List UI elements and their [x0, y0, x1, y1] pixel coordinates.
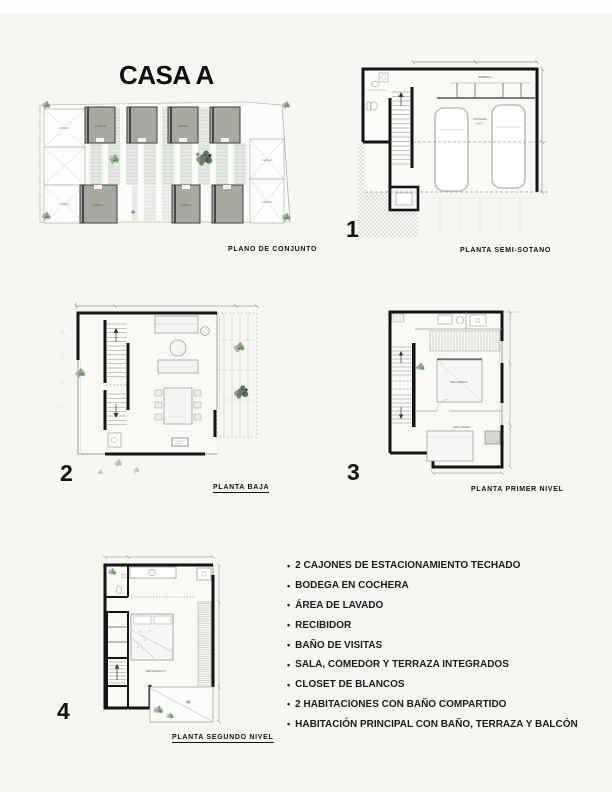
table-icon	[170, 340, 186, 356]
bullet-icon: •	[287, 561, 290, 571]
tree-icon	[234, 342, 245, 352]
site-unit-label: CASA A	[181, 203, 192, 207]
site-unit-label: CASA A	[262, 158, 273, 162]
toilet-icon	[116, 586, 121, 593]
feature-item: •CLOSET DE BLANCOS	[287, 675, 592, 695]
feature-text: 2 HABITACIONES CON BAÑO COMPARTIDO	[295, 699, 506, 710]
plan-4-caption: PLANTA SEGUNDO NIVEL	[172, 734, 274, 743]
bullet-icon: •	[287, 660, 290, 670]
site-unit-label: CASA A	[178, 124, 189, 128]
pillow-icon	[134, 616, 151, 624]
bullet-icon: •	[287, 581, 290, 591]
site-unit-label: CASA A	[95, 124, 106, 128]
car-icon	[435, 108, 468, 191]
plan-2-number: 2	[60, 460, 73, 487]
shrub-icon	[133, 467, 139, 473]
feature-text: BAÑO DE VISITAS	[295, 640, 382, 651]
sink-icon	[438, 315, 452, 324]
site-unit-label: CASA A	[59, 126, 70, 130]
toilet-icon	[371, 102, 377, 110]
site-unit-label: CASA A	[59, 202, 70, 206]
feature-text: SALA, COMEDOR Y TERRAZA INTEGRADOS	[295, 659, 509, 670]
feature-item: •BODEGA EN COCHERA	[287, 576, 592, 596]
feature-item: •2 HABITACIONES CON BAÑO COMPARTIDO	[287, 695, 592, 715]
feature-item: •SALA, COMEDOR Y TERRAZA INTEGRADOS	[287, 655, 592, 675]
bullet-icon: •	[287, 640, 290, 650]
tree-icon	[234, 385, 248, 398]
page-margin-strip	[0, 0, 612, 13]
site-plan-drawing: CASA A CASA A CASA A CASA A CASA A CASA …	[36, 95, 306, 233]
plan-2-drawing	[58, 300, 263, 490]
bullet-icon: •	[287, 680, 290, 690]
feature-item: •2 CAJONES DE ESTACIONAMIENTO TECHADO	[287, 556, 592, 576]
shrub-icon	[114, 459, 122, 467]
bullet-icon: •	[287, 600, 290, 610]
feature-text: CLOSET DE BLANCOS	[295, 679, 404, 690]
feature-text: RECIBIDOR	[295, 620, 351, 631]
plan3-recamara-label: RECAMARA	[450, 380, 467, 384]
pillow-icon	[154, 616, 171, 624]
plan3-recamara2-label: RECAMARA	[453, 425, 470, 429]
site-unit-label: CASA A	[262, 200, 273, 204]
plan-1-number: 1	[346, 216, 359, 243]
plan-4-drawing: RECAMARA P.	[98, 552, 233, 734]
chair-icon	[201, 327, 210, 336]
bullet-icon: •	[287, 699, 290, 709]
sink-icon	[372, 82, 379, 87]
feature-text: ÁREA DE LAVADO	[295, 600, 383, 611]
bed-icon	[427, 431, 473, 461]
feature-text: HABITACIÓN PRINCIPAL CON BAÑO, TERRAZA Y…	[295, 719, 578, 730]
feature-item: •ÁREA DE LAVADO	[287, 596, 592, 616]
feature-item: •RECIBIDOR	[287, 615, 592, 635]
plan-3-number: 3	[347, 459, 360, 486]
bullet-icon: •	[287, 620, 290, 630]
site-plan-caption: PLANO DE CONJUNTO	[228, 246, 317, 253]
shrub-icon	[97, 470, 102, 475]
feature-text: 2 CAJONES DE ESTACIONAMIENTO TECHADO	[295, 560, 520, 571]
plan1-cochera-label: COCHERA	[473, 117, 487, 121]
toilet-icon	[457, 317, 464, 324]
plan-4-number: 4	[57, 698, 70, 725]
plan-3-drawing: RECAMARA RECAMARA	[342, 303, 522, 481]
feature-item: •HABITACIÓN PRINCIPAL CON BAÑO, TERRAZA …	[287, 714, 592, 734]
document-page: CASA A	[0, 0, 612, 792]
tree-icon	[282, 102, 289, 109]
plan-2-caption: PLANTA BAJA	[213, 484, 269, 493]
site-unit-label: CASA A	[93, 203, 104, 207]
plan1-npt-label: N.P.T.	[476, 122, 483, 126]
page-title: CASA A	[119, 60, 214, 91]
features-list: •2 CAJONES DE ESTACIONAMIENTO TECHADO •B…	[287, 556, 592, 734]
plan-1-drawing: BODEGA COCHERA N.P.T.	[345, 58, 550, 243]
feature-text: BODEGA EN COCHERA	[295, 580, 409, 591]
sink-icon	[122, 574, 126, 578]
feature-item: •BAÑO DE VISITAS	[287, 635, 592, 655]
plan-3-caption: PLANTA PRIMER NIVEL	[471, 486, 564, 493]
bullet-icon: •	[287, 719, 290, 729]
plan4-recamara-label: RECAMARA P.	[146, 669, 166, 673]
plan1-bodega-label: BODEGA	[479, 75, 492, 79]
car-icon	[492, 105, 525, 188]
plan-1-caption: PLANTA SEMI-SOTANO	[460, 247, 551, 254]
